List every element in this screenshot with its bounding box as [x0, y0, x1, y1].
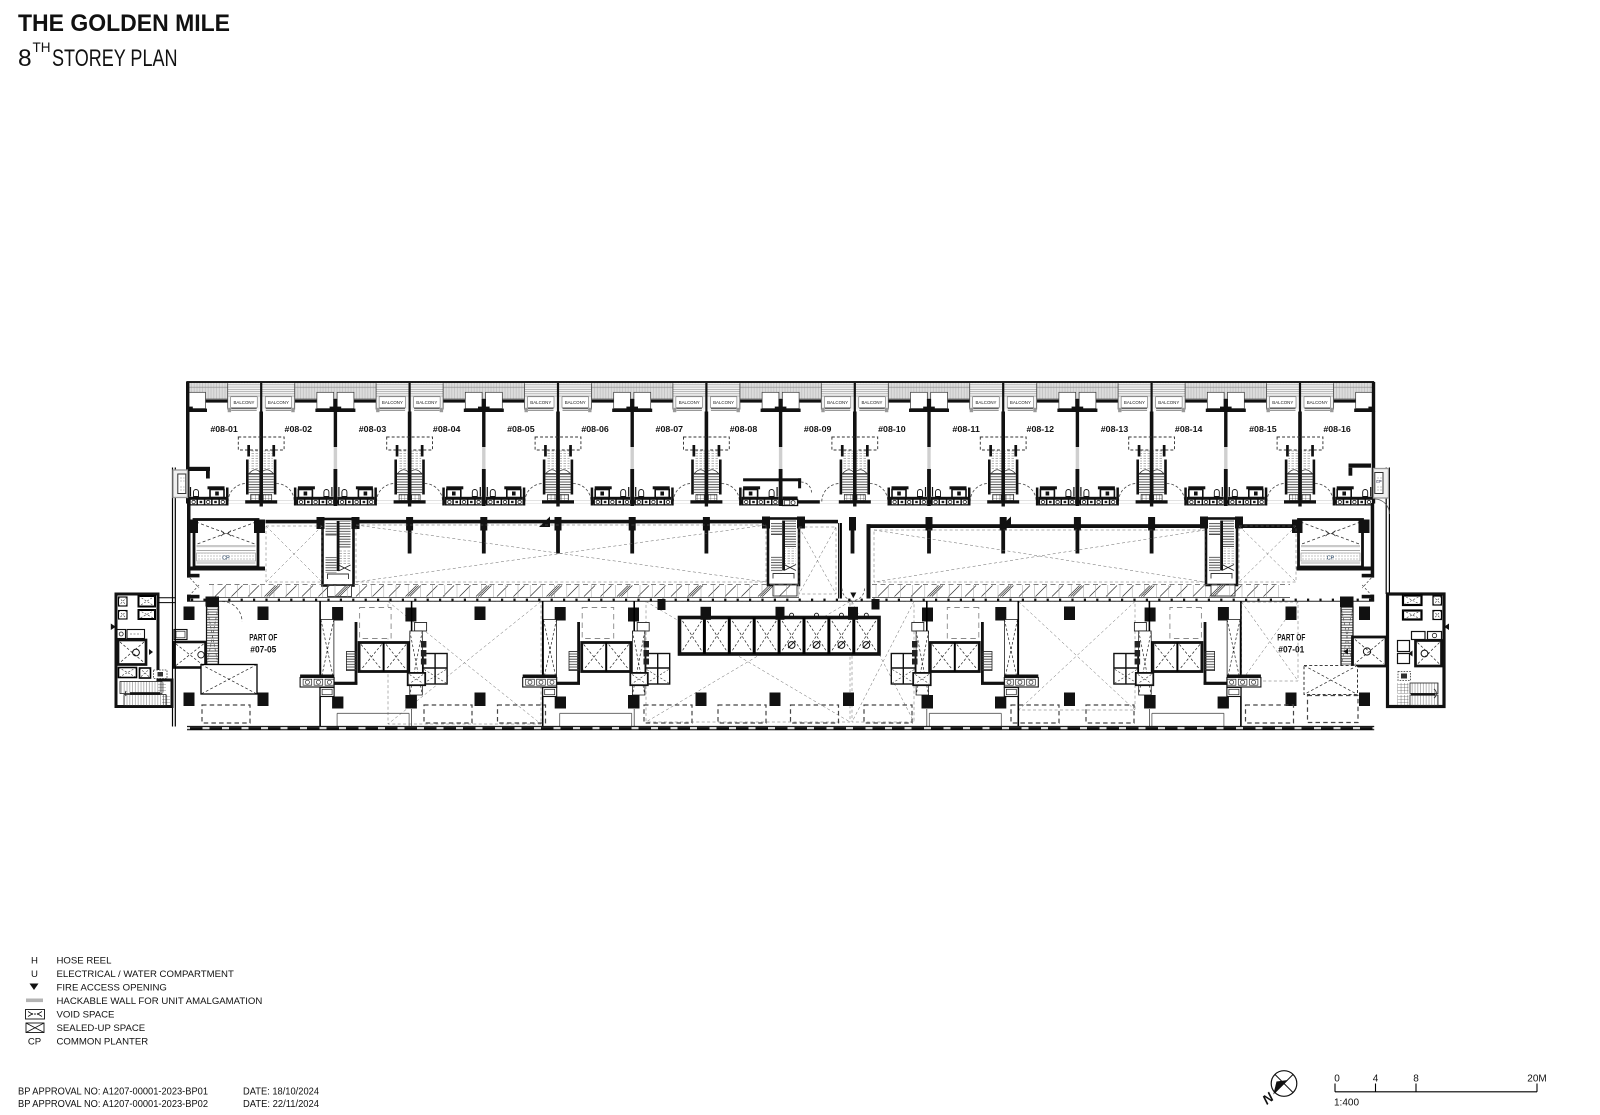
svg-text:#08-14: #08-14: [1175, 424, 1203, 434]
svg-text:PART OF: PART OF: [1277, 633, 1305, 643]
svg-text:BALCONY: BALCONY: [1124, 400, 1145, 405]
svg-text:#08-03: #08-03: [359, 424, 387, 434]
svg-text:PART OF: PART OF: [249, 633, 277, 643]
svg-text:CP: CP: [28, 1037, 41, 1048]
svg-text:BALCONY: BALCONY: [1158, 400, 1179, 405]
svg-text:BALCONY: BALCONY: [565, 400, 586, 405]
svg-text:CP: CP: [1376, 479, 1382, 484]
svg-text:BP APPROVAL NO: A1207-00001-20: BP APPROVAL NO: A1207-00001-2023-BP01: [18, 1087, 208, 1098]
svg-text:#08-12: #08-12: [1027, 424, 1055, 434]
svg-text:BALCONY: BALCONY: [1307, 400, 1328, 405]
svg-text:#08-04: #08-04: [433, 424, 461, 434]
svg-text:BALCONY: BALCONY: [713, 400, 734, 405]
svg-text:DATE: 22/11/2024: DATE: 22/11/2024: [243, 1099, 319, 1110]
svg-text:ELECTRICAL / WATER COMPARTMENT: ELECTRICAL / WATER COMPARTMENT: [57, 969, 234, 980]
svg-text:#08-01: #08-01: [210, 424, 238, 434]
svg-text:#08-09: #08-09: [804, 424, 832, 434]
svg-text:COMMON PLANTER: COMMON PLANTER: [57, 1037, 149, 1048]
svg-text:#08-05: #08-05: [507, 424, 535, 434]
svg-text:#08-13: #08-13: [1101, 424, 1129, 434]
svg-text:#08-16: #08-16: [1323, 424, 1351, 434]
svg-text:#07-05: #07-05: [250, 645, 276, 655]
svg-text:BALCONY: BALCONY: [530, 400, 551, 405]
svg-text:BALCONY: BALCONY: [382, 400, 403, 405]
svg-text:H: H: [31, 956, 38, 967]
svg-text:4: 4: [1373, 1074, 1379, 1085]
svg-text:#07-01: #07-01: [1278, 645, 1304, 655]
svg-text:#08-11: #08-11: [952, 424, 980, 434]
svg-text:TH: TH: [33, 40, 51, 55]
svg-text:#08-07: #08-07: [656, 424, 684, 434]
svg-text:CP: CP: [1327, 556, 1335, 562]
svg-text:CP: CP: [222, 556, 230, 562]
svg-text:8: 8: [1413, 1074, 1419, 1085]
svg-text:BALCONY: BALCONY: [416, 400, 437, 405]
svg-text:1:400: 1:400: [1334, 1098, 1359, 1109]
svg-text:BALCONY: BALCONY: [827, 400, 848, 405]
svg-text:SEALED-UP SPACE: SEALED-UP SPACE: [57, 1023, 146, 1034]
svg-text:VOID SPACE: VOID SPACE: [57, 1010, 115, 1021]
svg-text:BALCONY: BALCONY: [234, 400, 255, 405]
svg-text:20M: 20M: [1527, 1074, 1546, 1085]
svg-text:#08-02: #08-02: [285, 424, 313, 434]
svg-text:STOREY PLAN: STOREY PLAN: [52, 45, 178, 72]
svg-text:HOSE REEL: HOSE REEL: [57, 956, 113, 967]
svg-text:#08-08: #08-08: [730, 424, 758, 434]
svg-text:BALCONY: BALCONY: [679, 400, 700, 405]
svg-text:#08-15: #08-15: [1249, 424, 1277, 434]
svg-text:BALCONY: BALCONY: [976, 400, 997, 405]
svg-text:BP APPROVAL NO: A1207-00001-20: BP APPROVAL NO: A1207-00001-2023-BP02: [18, 1099, 208, 1110]
svg-text:#08-10: #08-10: [878, 424, 906, 434]
svg-text:DATE: 18/10/2024: DATE: 18/10/2024: [243, 1087, 319, 1098]
svg-text:FIRE ACCESS OPENING: FIRE ACCESS OPENING: [57, 983, 167, 994]
svg-text:#08-06: #08-06: [581, 424, 609, 434]
svg-text:BALCONY: BALCONY: [1010, 400, 1031, 405]
svg-text:BALCONY: BALCONY: [268, 400, 289, 405]
svg-text:0: 0: [1334, 1074, 1340, 1085]
svg-text:8: 8: [18, 45, 32, 72]
svg-text:U: U: [31, 969, 38, 980]
svg-text:BALCONY: BALCONY: [862, 400, 883, 405]
svg-text:THE GOLDEN MILE: THE GOLDEN MILE: [18, 10, 230, 37]
svg-text:HACKABLE WALL FOR UNIT AMALGAM: HACKABLE WALL FOR UNIT AMALGAMATION: [57, 996, 263, 1007]
svg-text:BALCONY: BALCONY: [1272, 400, 1293, 405]
